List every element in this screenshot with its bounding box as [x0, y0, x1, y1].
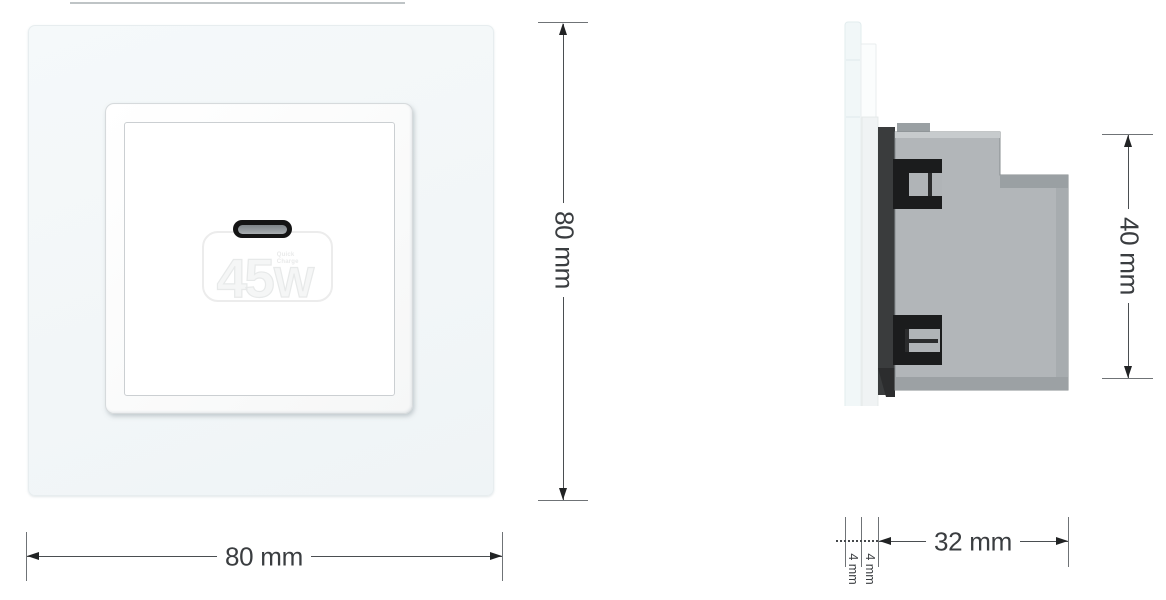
frame-thickness-dim-label: 4 mm — [862, 551, 878, 586]
mechanism-step-band — [1000, 175, 1068, 188]
mechanism-bottom-clip — [893, 315, 942, 365]
watt-small-text: QuickCharge — [277, 252, 299, 265]
dotted-leader-line — [836, 540, 878, 542]
watt-unit: W — [274, 259, 314, 307]
arrow-left-icon — [879, 537, 891, 545]
dim-end-tick — [1068, 517, 1069, 567]
usb-c-port-contact — [238, 225, 287, 234]
arrow-down-icon — [559, 488, 567, 500]
arrow-down-icon — [1124, 366, 1132, 378]
mechanism-top-tab — [897, 123, 930, 132]
side-depth-dim-label: 32 mm — [926, 525, 1020, 560]
side-glass-edge — [845, 22, 861, 406]
arrow-up-icon — [559, 23, 567, 35]
glass-thickness-dim-label: 4 mm — [845, 551, 861, 586]
watt-rating-label: 45 QuickCharge W — [198, 246, 332, 304]
dim-end-tick — [502, 532, 503, 581]
mechanism-top-highlight — [895, 132, 1000, 138]
front-height-dim-label: 80 mm — [547, 203, 582, 297]
crop-artifact-line — [70, 2, 405, 4]
dim-end-tick — [538, 500, 588, 501]
watt-unit-wrap: QuickCharge W — [274, 263, 314, 304]
mechanism-bottom-shading — [895, 377, 1068, 390]
arrow-left-icon — [27, 552, 39, 560]
arrow-right-icon — [1056, 537, 1068, 545]
mechanism-top-clip — [893, 159, 942, 209]
side-height-dim-label: 40 mm — [1112, 209, 1147, 303]
arrow-up-icon — [1124, 135, 1132, 147]
front-width-dim-label: 80 mm — [217, 540, 311, 575]
side-mounting-plate-edge — [862, 117, 878, 406]
usb-c-port-icon — [233, 220, 292, 238]
side-view-drawing — [838, 16, 1083, 406]
arrow-right-icon — [490, 552, 502, 560]
mechanism-dark-frame — [878, 127, 895, 395]
watt-number: 45 — [217, 253, 272, 304]
dim-end-tick — [1102, 378, 1153, 379]
mechanism-right-shading — [1056, 188, 1068, 378]
